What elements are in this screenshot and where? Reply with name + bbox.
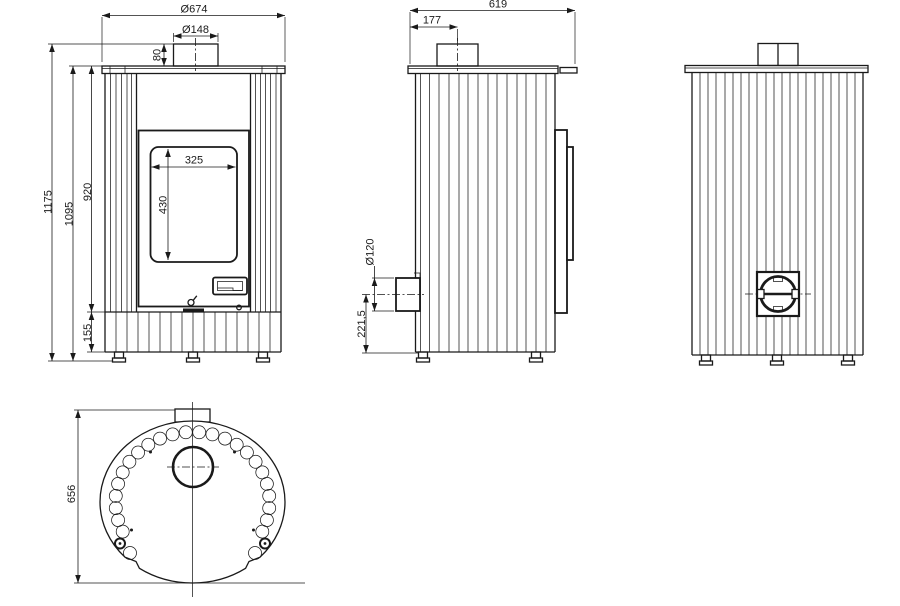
- side-dimensions: 619 177 Ø120 221,5: [356, 0, 575, 353]
- dim-front-flue-height: 80: [152, 49, 164, 61]
- front-base-skirt: [105, 312, 281, 352]
- dim-side-flue-offset: 177: [423, 15, 441, 27]
- back-feet: [700, 355, 855, 365]
- technical-drawing: Ø674 Ø148 80 1175 1095 920 155 325 4: [0, 0, 900, 606]
- back-top-plate: [685, 66, 868, 73]
- dim-front-total-height: 1175: [43, 190, 55, 214]
- front-top-plate: [102, 66, 285, 74]
- side-feet: [417, 352, 543, 362]
- side-rear-outlet: [362, 273, 424, 311]
- side-body: [416, 74, 556, 353]
- side-view: 619 177 Ø120 221,5: [356, 0, 577, 362]
- back-flue-pipe: [758, 44, 798, 66]
- dim-front-body-height: 1095: [64, 202, 76, 226]
- dim-front-base-height: 155: [82, 324, 94, 342]
- dim-front-window-height: 430: [158, 196, 170, 214]
- front-view: Ø674 Ø148 80 1175 1095 920 155 325 4: [43, 4, 285, 363]
- side-door-profile: [555, 130, 573, 313]
- dim-top-body-depth: 656: [66, 485, 78, 503]
- dim-side-outlet-height: 221,5: [356, 310, 368, 338]
- back-flue-outlet: [745, 272, 811, 316]
- dim-front-flue-diameter: Ø148: [182, 24, 209, 36]
- front-feet: [113, 352, 270, 362]
- front-door-latch: [183, 296, 204, 312]
- side-top-plate: [408, 66, 577, 74]
- dim-side-outlet-diameter: Ø120: [365, 239, 377, 266]
- front-door-handle: [213, 278, 247, 295]
- dim-front-window-width: 325: [185, 155, 203, 167]
- dim-side-depth: 619: [489, 0, 507, 11]
- top-view: 656: [66, 402, 305, 597]
- dim-front-overall-width: Ø674: [181, 4, 208, 16]
- back-view: [685, 44, 868, 366]
- dim-front-panel-height: 920: [82, 183, 94, 201]
